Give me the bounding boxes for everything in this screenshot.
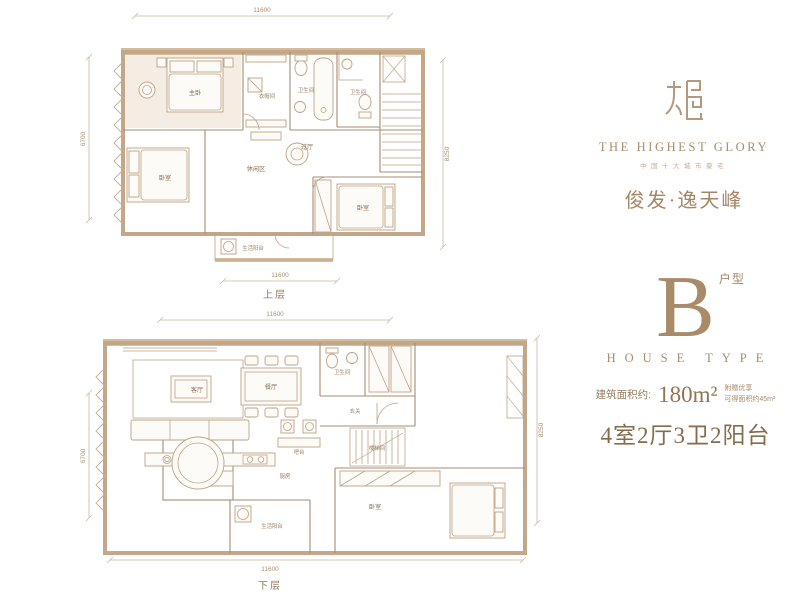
room-label-bar: 吧台	[294, 448, 305, 456]
floorplan-page: 11600 6700 8250 11600	[0, 0, 800, 600]
brand-panel: THE HIGHEST GLORY 中国十大城市豪宅 俊发·逸天峰	[578, 76, 790, 213]
upper-dim-bottom: 11600	[271, 272, 289, 279]
brand-tagline: 中国十大城市豪宅	[578, 160, 790, 170]
washer-icon	[221, 239, 236, 254]
room-label-lower-balcony: 生活阳台	[261, 522, 283, 530]
lower-washer-icon	[235, 506, 251, 522]
room-label-lower-bath: 卫生间	[334, 368, 350, 376]
room-label-bedroom-right: 卧室	[357, 204, 369, 212]
brand-name-en: THE HIGHEST GLORY	[578, 140, 790, 155]
right-bed-icon	[315, 180, 395, 232]
lower-dim-right: 8250	[538, 422, 545, 437]
armchair-icon	[139, 82, 155, 98]
upper-dim-top: 11600	[253, 7, 271, 14]
lower-toilet-icon	[326, 348, 358, 368]
tv-wall	[123, 348, 217, 351]
room-label-stairwell: 楼梯间	[369, 444, 385, 452]
toilet-icon	[339, 54, 371, 118]
house-type-letter: B	[656, 259, 715, 356]
sofa-icon	[131, 360, 249, 440]
room-label-living: 客厅	[191, 386, 203, 394]
room-label-hall: 过厅	[301, 143, 313, 151]
room-label-bath1: 卫生间	[298, 86, 314, 94]
brand-seal-icon	[661, 76, 707, 126]
room-label-bedroom-left: 卧室	[159, 174, 171, 182]
upper-dim-right: 8250	[444, 146, 451, 161]
area-row: 建筑面积约: 180m² 附赠优享 可得面积约45m²	[578, 382, 793, 408]
room-label-closet: 衣帽间	[259, 92, 275, 100]
room-label-kitchen: 厨房	[280, 472, 291, 480]
room-label-master: 主卧	[189, 89, 201, 97]
room-label-bath2: 卫生间	[350, 88, 366, 96]
lower-floor-caption: 下层	[258, 580, 282, 592]
bonus-line1: 附赠优享	[724, 384, 775, 395]
area-value: 180m²	[658, 382, 717, 408]
room-label-upper-balcony: 生活阳台	[242, 244, 264, 252]
upper-floor-caption: 上层	[263, 289, 287, 301]
layout-summary: 4室2厅3卫2阳台	[578, 416, 793, 450]
room-label-dining: 餐厅	[265, 383, 277, 391]
round-tub-icon	[172, 437, 224, 489]
lower-dim-bottom: 11600	[261, 566, 279, 573]
lower-bed-icon	[340, 471, 505, 538]
lower-dim-top: 11600	[266, 311, 284, 318]
leisure-chair-icon	[251, 132, 308, 165]
upper-dim-left: 6700	[80, 131, 87, 146]
entry-door-arc	[377, 403, 398, 424]
area-prefix: 建筑面积约:	[596, 387, 651, 402]
shaft-hatch	[383, 56, 405, 82]
house-type-letter-row: B 户型	[656, 268, 715, 349]
lower-dim-left: 6700	[80, 448, 87, 463]
upper-floor-plan: 11600 6700 8250 11600	[75, 2, 475, 302]
brand-name-cn: 俊发·逸天峰	[578, 184, 790, 213]
room-label-lower-bedroom: 卧室	[369, 503, 381, 511]
bonus-note: 附赠优享 可得面积约45m²	[724, 384, 775, 405]
wardrobe-icon	[369, 346, 411, 392]
bonus-line2: 可得面积约45m²	[724, 395, 775, 406]
master-bed-icon	[157, 58, 233, 112]
bar-icon	[278, 420, 320, 447]
lower-floor-plan: 11600 6700 8250 11600	[75, 308, 545, 598]
house-type-panel: B 户型 HOUSE TYPE 建筑面积约: 180m² 附赠优享 可得面积约4…	[578, 268, 793, 450]
house-type-letter-label: 户型	[719, 274, 745, 285]
closet-shelves-icon	[246, 55, 286, 127]
equipment-platform-hatch	[507, 356, 523, 418]
room-label-leisure: 休闲区	[247, 165, 266, 173]
room-label-entry: 玄关	[350, 407, 361, 415]
